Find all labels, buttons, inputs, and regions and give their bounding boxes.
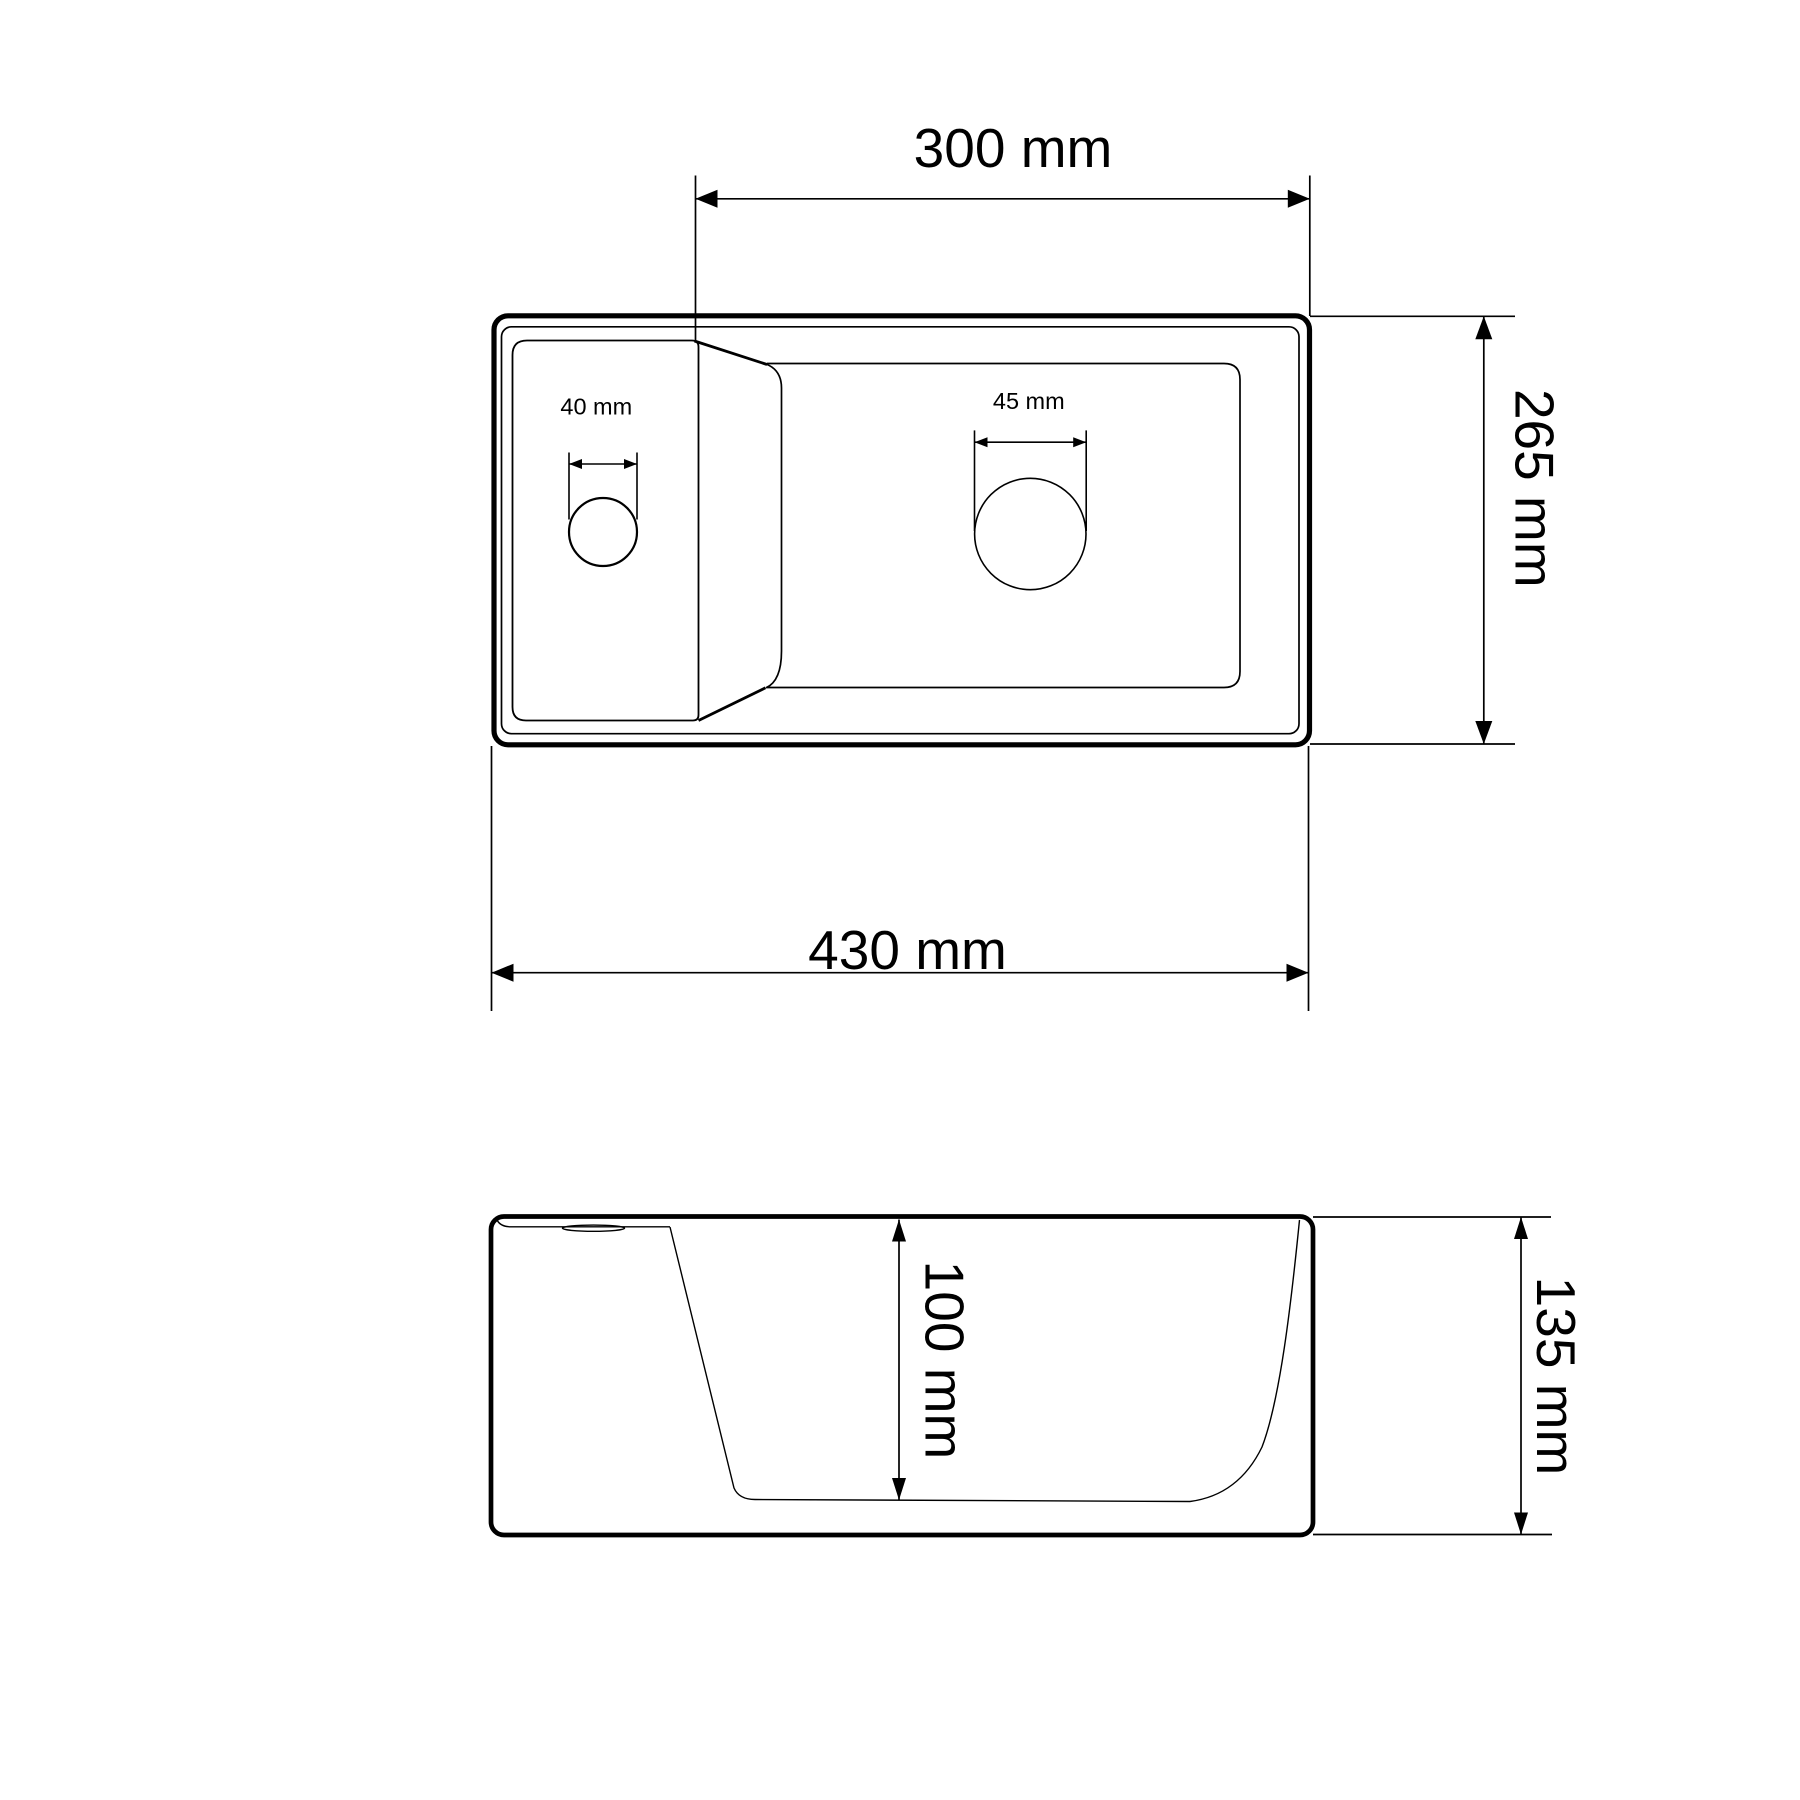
svg-text:265 mm: 265 mm — [1504, 389, 1566, 588]
svg-text:100 mm: 100 mm — [914, 1261, 976, 1460]
svg-text:430 mm: 430 mm — [808, 919, 1007, 981]
svg-text:300 mm: 300 mm — [914, 117, 1113, 179]
svg-text:135 mm: 135 mm — [1525, 1277, 1587, 1476]
svg-text:45 mm: 45 mm — [993, 388, 1065, 414]
svg-text:40 mm: 40 mm — [560, 394, 632, 420]
